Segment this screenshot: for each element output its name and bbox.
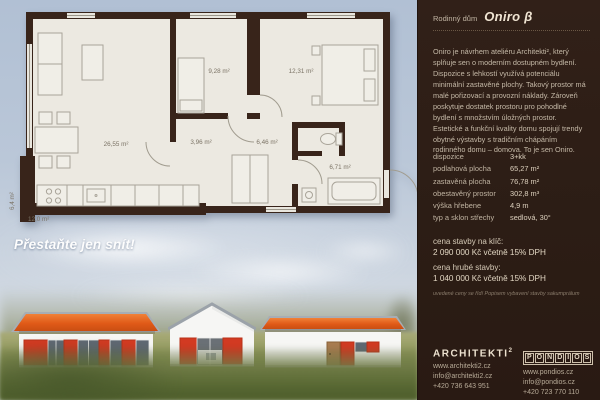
spec-table: dispozice3+kk podlahová plocha65,27 m² z… — [433, 151, 588, 225]
house-type-label: Rodinný dům — [433, 14, 477, 23]
architekti-name: ARCHITEKTI — [433, 348, 509, 359]
website-link[interactable]: www.architekti2.cz — [433, 362, 512, 372]
foreground-grass-dark — [0, 345, 180, 400]
spec-label: dispozice — [433, 151, 510, 163]
room-label-corridor: 6,46 m² — [256, 139, 277, 146]
architekti-logo: ARCHITEKTI2 — [433, 346, 512, 359]
price-value: 1 040 000 Kč včetně 15% DPH — [433, 274, 546, 285]
room-label-living: 26,55 m² — [104, 141, 129, 148]
spec-row: obestavěný prostor302,8 m³ — [433, 188, 588, 200]
pondios-letter: D — [555, 353, 564, 363]
price-label: cena hrubé stavby: — [433, 263, 546, 274]
spec-row: typ a sklon střechysedlová, 30° — [433, 212, 588, 224]
spec-value: 3+kk — [510, 151, 526, 163]
pondios-letter: I — [565, 353, 571, 363]
price-shell: cena hrubé stavby: 1 040 000 Kč včetně 1… — [433, 263, 546, 284]
website-link[interactable]: www.pondios.cz — [523, 368, 593, 378]
pondios-letter: P — [525, 353, 534, 363]
info-panel: Rodinný dům Oniro β Oniro je návrhem ate… — [417, 0, 600, 400]
architekti-contact: ARCHITEKTI2 www.architekti2.cz info@arch… — [433, 346, 512, 392]
spec-value: sedlová, 30° — [510, 212, 551, 224]
roof-tiles — [262, 318, 404, 329]
floor-plan: 26,55 m² 9,28 m² 12,31 m² 3,96 m² 6,46 m… — [4, 10, 424, 222]
price-value: 2 090 000 Kč včetně 15% DPH — [433, 248, 546, 259]
pondios-letter: O — [572, 353, 581, 363]
slogan: Přestaňte jen snít! — [14, 237, 135, 252]
architekti-lines: www.architekti2.cz info@architekti2.cz +… — [433, 362, 512, 392]
cloud — [320, 238, 410, 264]
toilet — [336, 133, 342, 145]
room-label-bedroom-2: 12,31 m² — [289, 68, 314, 75]
spec-row: zastavěná plocha76,78 m² — [433, 176, 588, 188]
room-label-bedroom-1: 9,28 m² — [208, 68, 229, 75]
panel-header: Rodinný dům Oniro β — [433, 0, 590, 31]
side-terrace-label: 6,4 m² — [9, 192, 16, 210]
stove-burner — [46, 189, 51, 194]
spec-label: typ a sklon střechy — [433, 212, 510, 224]
phone-number: +420 736 643 951 — [433, 382, 512, 392]
price-note: uvedené ceny se řídí Popisem vybavení st… — [433, 291, 592, 297]
pondios-letter: N — [545, 353, 554, 363]
terrace-label: 12,0 m² — [28, 216, 49, 222]
spec-row: podlahová plocha65,27 m² — [433, 163, 588, 175]
house-description: Oniro je návrhem ateliéru Architekti², k… — [433, 47, 586, 156]
email-link[interactable]: info@pondios.cz — [523, 378, 593, 388]
brochure-page: 26,55 m² 9,28 m² 12,31 m² 3,96 m² 6,46 m… — [0, 0, 600, 400]
pondios-letter: O — [535, 353, 544, 363]
pondios-logo: PONDIOS — [523, 351, 593, 365]
architekti-sup: 2 — [509, 348, 512, 354]
pondios-contact: PONDIOS www.pondios.cz info@pondios.cz +… — [523, 346, 593, 398]
spec-label: výška hřebene — [433, 200, 510, 212]
price-turnkey: cena stavby na klíč: 2 090 000 Kč včetně… — [433, 237, 546, 258]
sofa — [82, 45, 103, 80]
price-label: cena stavby na klíč: — [433, 237, 546, 248]
spec-value: 76,78 m² — [510, 176, 539, 188]
spec-row: výška hřebene4,9 m — [433, 200, 588, 212]
spec-label: zastavěná plocha — [433, 176, 510, 188]
kitchen-counter — [37, 185, 199, 206]
spec-value: 302,8 m³ — [510, 188, 539, 200]
pondios-letter: S — [583, 353, 592, 363]
dining-table — [35, 127, 78, 153]
phone-number: +420 723 770 110 — [523, 388, 593, 398]
email-link[interactable]: info@architekti2.cz — [433, 372, 512, 382]
room-label-bathroom: 6,71 m² — [329, 164, 350, 171]
room-label-hall: 3,96 m² — [190, 139, 211, 146]
spec-value: 4,9 m — [510, 200, 528, 212]
spec-label: podlahová plocha — [433, 163, 510, 175]
house-name: Oniro β — [484, 9, 532, 24]
spec-row: dispozice3+kk — [433, 151, 588, 163]
roof-tiles — [14, 314, 158, 331]
pondios-lines: www.pondios.cz info@pondios.cz +420 723 … — [523, 368, 593, 398]
spec-label: obestavěný prostor — [433, 188, 510, 200]
spec-value: 65,27 m² — [510, 163, 539, 175]
